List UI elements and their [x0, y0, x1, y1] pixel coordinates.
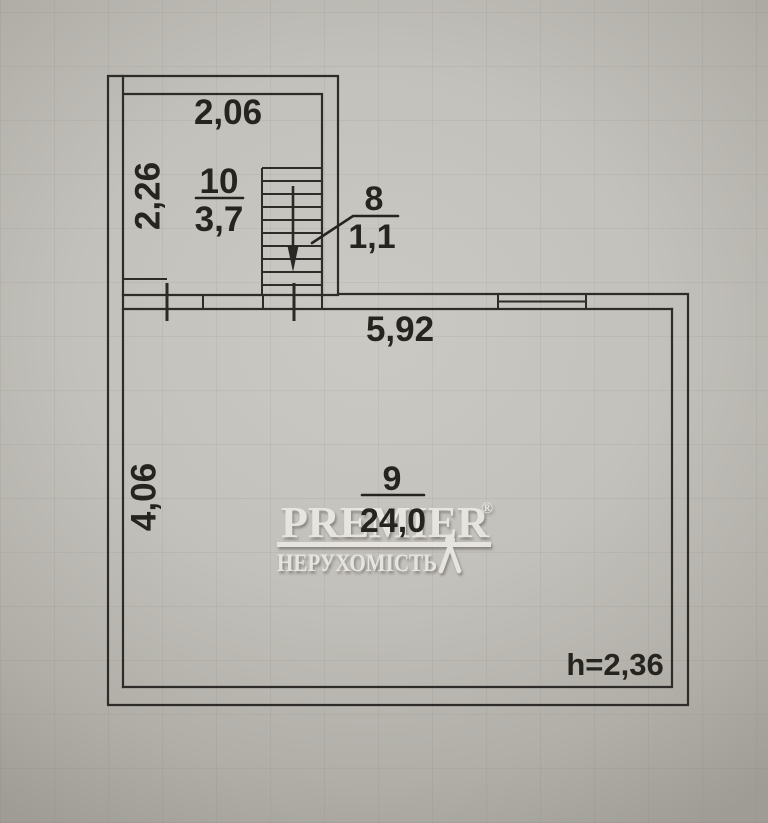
outer-wall	[108, 76, 688, 705]
window-symbol	[498, 294, 586, 309]
dim-upper-width: 2,06	[194, 93, 262, 132]
room10-number: 10	[200, 162, 239, 201]
room10-area: 3,7	[195, 200, 244, 239]
walls	[108, 76, 688, 705]
room-labels: 10 3,7 8 1,1 9 24,0	[195, 162, 426, 540]
dim-upper-depth: 2,26	[129, 162, 168, 230]
room8-number: 8	[365, 180, 384, 218]
staircase	[262, 168, 322, 296]
floorplan-photo: PREMIER ® НЕРУХОМІСТЬ	[0, 0, 768, 823]
watermark-underline-bar	[277, 542, 491, 547]
dim-main-depth: 4,06	[125, 463, 164, 531]
room9-area: 24,0	[360, 502, 426, 540]
room9-number: 9	[383, 460, 402, 498]
watermark-subtitle: НЕРУХОМІСТЬ	[277, 550, 437, 577]
floor-plan-drawing: PREMIER ® НЕРУХОМІСТЬ	[0, 0, 768, 823]
registered-mark-icon: ®	[481, 500, 493, 517]
room8-area: 1,1	[348, 218, 395, 256]
ceiling-height-label: h=2,36	[566, 647, 663, 682]
dim-main-width: 5,92	[366, 310, 434, 349]
